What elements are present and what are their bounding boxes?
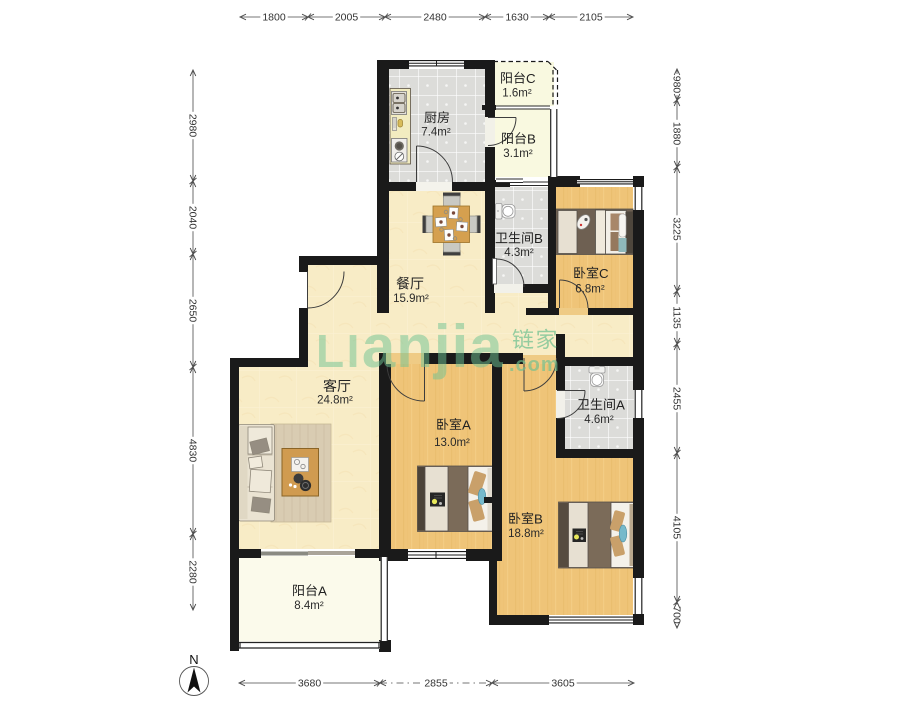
- svg-text:2040: 2040: [186, 206, 198, 230]
- svg-text:1.6m²: 1.6m²: [502, 88, 532, 100]
- svg-text:7.4m²: 7.4m²: [421, 127, 451, 139]
- svg-text:4105: 4105: [670, 516, 682, 540]
- svg-text:6.8m²: 6.8m²: [575, 284, 605, 296]
- svg-text:2455: 2455: [670, 387, 682, 411]
- svg-text:C: C: [526, 71, 536, 86]
- svg-text:1880: 1880: [670, 122, 682, 146]
- svg-text:3680: 3680: [298, 678, 322, 690]
- svg-text:A: A: [616, 397, 625, 412]
- svg-text:4.3m²: 4.3m²: [504, 247, 534, 259]
- svg-text:A: A: [318, 583, 327, 598]
- svg-text:980: 980: [670, 76, 682, 94]
- svg-text:3605: 3605: [551, 678, 575, 690]
- svg-text:13.0m²: 13.0m²: [434, 437, 470, 449]
- svg-text:4830: 4830: [186, 439, 198, 463]
- svg-text:2855: 2855: [424, 678, 448, 690]
- svg-text:2105: 2105: [579, 12, 603, 24]
- svg-text:C: C: [599, 266, 609, 281]
- svg-text:2650: 2650: [186, 299, 198, 323]
- svg-text:2280: 2280: [186, 560, 198, 584]
- svg-text:2480: 2480: [423, 12, 447, 24]
- svg-text:700: 700: [670, 606, 682, 624]
- svg-text:B: B: [534, 231, 543, 246]
- svg-text:4.6m²: 4.6m²: [584, 414, 614, 426]
- svg-text:24.8m²: 24.8m²: [317, 395, 353, 407]
- svg-text:15.9m²: 15.9m²: [393, 293, 429, 305]
- svg-text:A: A: [462, 417, 471, 432]
- svg-text:3.1m²: 3.1m²: [503, 148, 533, 160]
- svg-text:8.4m²: 8.4m²: [294, 600, 324, 612]
- svg-text:B: B: [527, 131, 536, 146]
- svg-text:.com: .com: [509, 354, 560, 376]
- svg-text:1800: 1800: [262, 12, 286, 24]
- svg-text:18.8m²: 18.8m²: [508, 528, 544, 540]
- svg-text:2005: 2005: [335, 12, 359, 24]
- svg-text:N: N: [189, 652, 198, 667]
- svg-text:3225: 3225: [670, 217, 682, 241]
- svg-text:1135: 1135: [670, 306, 682, 329]
- svg-text:2980: 2980: [186, 114, 198, 138]
- svg-text:1630: 1630: [505, 12, 529, 24]
- svg-text:B: B: [534, 511, 543, 526]
